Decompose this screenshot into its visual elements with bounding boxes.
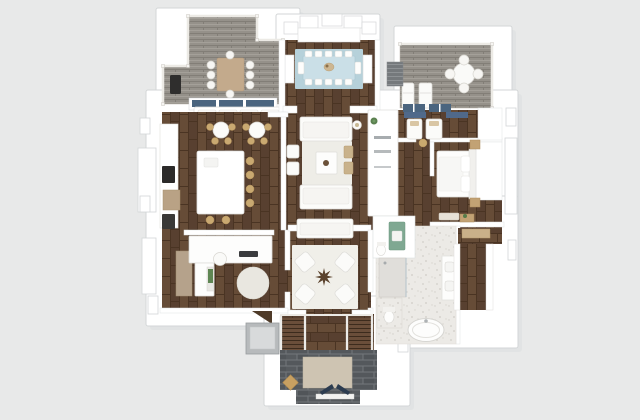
table-decor <box>323 160 329 166</box>
chair-pillow <box>410 121 419 126</box>
toilet <box>377 245 386 256</box>
dining-chair <box>305 51 312 57</box>
bed-bench <box>439 213 459 220</box>
monitor <box>239 251 258 257</box>
sofa-cushions <box>303 188 349 204</box>
outdoor-chair <box>226 51 234 59</box>
elevator-door <box>250 327 275 349</box>
floor-plan-viewport <box>0 0 640 420</box>
cafe-table <box>213 122 229 138</box>
wall <box>430 142 434 176</box>
bar-stool <box>246 171 254 179</box>
stair-flight <box>349 318 371 352</box>
closet-shelf <box>486 244 493 310</box>
patio-chair <box>459 83 469 93</box>
buffet-cabinet <box>363 55 372 83</box>
dining-chair <box>335 79 342 85</box>
bay-wall-bump <box>362 22 376 34</box>
range-appliance <box>162 166 175 183</box>
stair-railing <box>280 316 282 352</box>
patio-chair <box>459 55 469 65</box>
toilet-tank <box>383 307 395 312</box>
deck-top-right <box>399 43 494 110</box>
bar-stool <box>246 199 254 207</box>
wall <box>368 230 373 292</box>
stair-flight <box>282 318 304 352</box>
vanity-sink <box>392 231 402 241</box>
wall <box>184 230 274 235</box>
stair-railing <box>346 316 348 352</box>
sofa-cushions <box>300 223 350 235</box>
railing-post <box>399 43 402 46</box>
plant-leaves <box>208 269 213 283</box>
bar-stool <box>222 216 230 224</box>
cafe-stool <box>225 138 232 145</box>
patio-table <box>453 63 475 85</box>
vanity-sink <box>445 262 454 272</box>
bar-stool <box>206 216 214 224</box>
stair-railing <box>371 316 373 352</box>
toilet-tank <box>377 242 386 246</box>
desk-chair <box>214 253 227 266</box>
cafe-stool <box>207 124 214 131</box>
window-mullion <box>439 104 441 112</box>
railing-post <box>256 39 259 42</box>
cafe-stool <box>229 124 236 131</box>
outdoor-dining-table <box>217 58 244 91</box>
plant-highlight <box>373 120 376 123</box>
dining-chair <box>335 51 342 57</box>
bay-wall-bump <box>322 14 342 26</box>
closet-shelf <box>454 244 460 310</box>
dining-chair <box>305 79 312 85</box>
entry-rug <box>303 357 352 388</box>
wall-closet-block <box>476 142 502 200</box>
wall <box>375 40 380 114</box>
stair-guard <box>280 314 373 316</box>
shower-drain <box>384 262 387 265</box>
pillow <box>461 176 470 192</box>
cafe-table <box>249 122 265 138</box>
nightstand <box>470 140 480 149</box>
cafe-stool <box>265 124 272 131</box>
window-seat <box>404 112 426 118</box>
railing-post <box>162 65 165 68</box>
sitting-side-table <box>419 139 427 147</box>
armchair <box>287 145 299 158</box>
railing-post <box>256 15 259 18</box>
floor-plan-svg <box>0 0 640 420</box>
cafe-stool <box>248 138 255 145</box>
armchair <box>287 162 299 175</box>
bar-stool <box>246 157 254 165</box>
outdoor-chair <box>207 61 215 69</box>
bay-wall-bump <box>344 16 362 28</box>
door-frame <box>316 394 354 399</box>
dresser <box>460 214 474 222</box>
sofa-cushions <box>303 122 349 138</box>
bay-wall-bump <box>300 16 318 28</box>
stair-railing <box>304 316 306 352</box>
navy-window <box>192 100 216 107</box>
shower <box>379 258 406 297</box>
counter-shelf <box>374 136 391 139</box>
slab-left-bay-2 <box>142 238 156 294</box>
tan-cabinet <box>163 190 180 210</box>
dresser-plant <box>463 214 467 218</box>
dining-chair <box>325 79 332 85</box>
ottoman <box>344 146 353 158</box>
wall <box>285 230 290 270</box>
closet-floor <box>460 244 486 310</box>
railing-post <box>187 65 190 68</box>
outdoor-chair <box>226 90 234 98</box>
bump-southwest <box>148 296 158 314</box>
patio-chair <box>473 69 483 79</box>
closet-console <box>462 229 490 238</box>
master-bathroom <box>373 216 456 344</box>
wall <box>279 40 285 114</box>
centerpiece-detail <box>326 65 329 68</box>
dining-chair <box>345 51 352 57</box>
toilet <box>384 311 394 323</box>
window-seat <box>446 112 468 118</box>
dining-chair <box>315 51 322 57</box>
bump-west-1 <box>140 118 150 134</box>
office-rug <box>237 267 269 299</box>
railing-post <box>491 43 494 46</box>
outdoor-chair <box>207 81 215 89</box>
patio-chair <box>445 69 455 79</box>
dining-chair <box>325 51 332 57</box>
cafe-stool <box>212 138 219 145</box>
chair-pillow <box>429 121 439 126</box>
wall-oven-appliance <box>162 214 175 229</box>
railing-post <box>187 15 190 18</box>
island-sink <box>204 158 218 167</box>
outdoor-chair <box>246 71 254 79</box>
counter-shelf <box>374 150 391 153</box>
bar-stool <box>246 185 254 193</box>
bay-window-bench <box>298 28 360 42</box>
navy-window <box>219 100 243 107</box>
cafe-stool <box>261 138 268 145</box>
family-sitting-room <box>292 219 358 309</box>
navy-window <box>246 100 274 107</box>
nightstand <box>470 198 480 207</box>
ottoman <box>344 162 353 174</box>
tub-faucet <box>424 319 428 323</box>
dining-chair <box>315 79 322 85</box>
wall-corner-block <box>478 108 502 140</box>
dining-end-chair <box>298 62 304 74</box>
table-lamp <box>355 123 359 127</box>
bed-duvet <box>439 157 463 191</box>
pillow <box>461 156 470 172</box>
bbq-grill <box>170 75 181 94</box>
counter-shelf <box>374 166 391 168</box>
slab-right-bay <box>505 138 517 214</box>
vanity-sink <box>445 281 454 291</box>
outdoor-chair <box>207 71 215 79</box>
bump-east-2 <box>508 240 516 260</box>
dining-chair <box>345 79 352 85</box>
long-counter <box>368 110 398 216</box>
gallery-counter <box>368 110 398 216</box>
bump-west-2 <box>140 196 150 212</box>
desk <box>189 236 272 263</box>
wall <box>281 112 286 230</box>
bay-wall-bump <box>284 22 298 34</box>
railing-post <box>162 103 165 106</box>
bump-east-1 <box>506 108 516 126</box>
headboard <box>469 149 476 199</box>
wall <box>268 112 288 117</box>
star-table <box>315 268 333 286</box>
outdoor-chair <box>246 81 254 89</box>
exterior-stairs <box>387 62 403 86</box>
window-mullion <box>413 104 415 112</box>
cafe-stool <box>243 124 250 131</box>
dining-end-chair <box>355 62 361 74</box>
outdoor-chair <box>246 61 254 69</box>
buffet-cabinet <box>285 55 294 83</box>
table-centerpiece <box>324 63 334 71</box>
